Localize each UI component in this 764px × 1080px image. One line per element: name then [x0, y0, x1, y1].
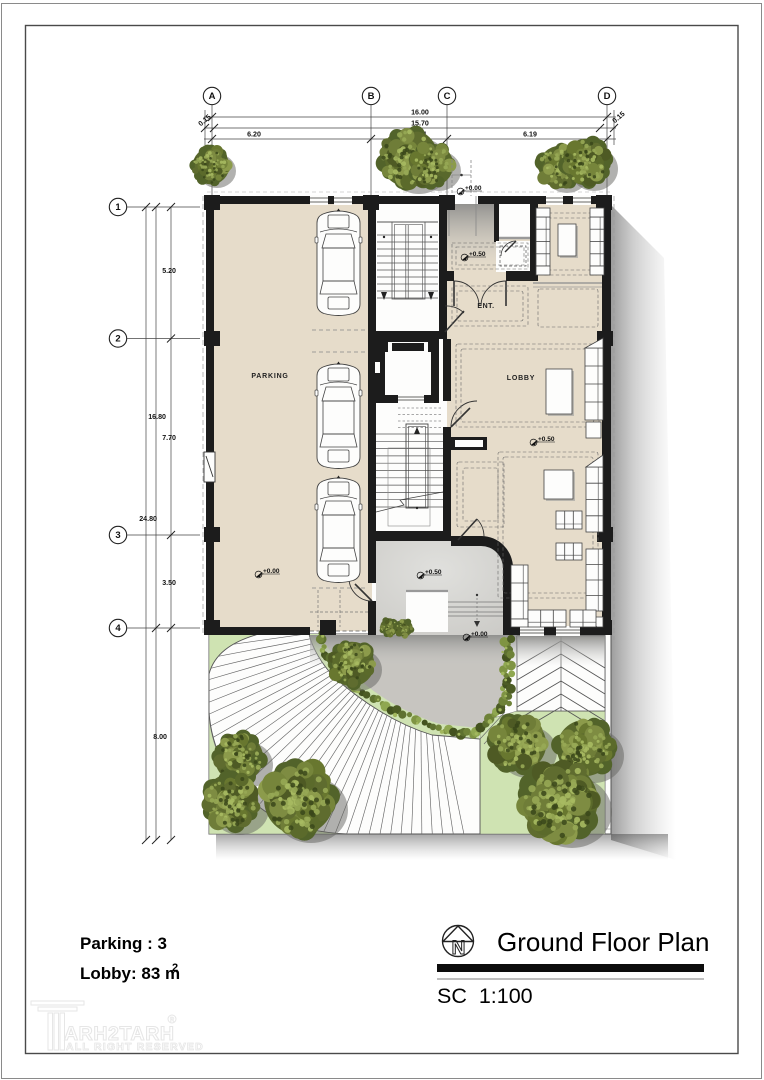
svg-text:Ground Floor Plan: Ground Floor Plan: [497, 927, 709, 957]
svg-text:R: R: [170, 1018, 175, 1024]
svg-text:8.00: 8.00: [153, 733, 167, 741]
svg-text:ENT.: ENT.: [477, 303, 494, 310]
svg-text:2: 2: [172, 962, 178, 974]
svg-text:D: D: [604, 91, 611, 102]
svg-text:A: A: [209, 91, 216, 102]
svg-text:6.19: 6.19: [523, 131, 537, 139]
svg-text:3: 3: [115, 530, 120, 541]
svg-text:N: N: [452, 938, 466, 959]
svg-text:SC 1:100: SC 1:100: [437, 984, 533, 1008]
svg-text:LOBBY: LOBBY: [507, 375, 536, 382]
svg-text:2: 2: [115, 334, 120, 345]
svg-text:5.20: 5.20: [162, 267, 176, 275]
svg-text:PARKING: PARKING: [251, 373, 288, 380]
svg-text:C: C: [444, 91, 451, 102]
svg-text:3.50: 3.50: [162, 579, 176, 587]
svg-text:16.00: 16.00: [411, 109, 429, 117]
svg-text:B: B: [368, 91, 375, 102]
svg-text:24.80: 24.80: [139, 515, 157, 523]
svg-text:Lobby: 83 m: Lobby: 83 m: [80, 964, 180, 983]
svg-text:ALL RIGHT RESERVED: ALL RIGHT RESERVED: [66, 1041, 204, 1053]
svg-text:6.20: 6.20: [247, 131, 261, 139]
svg-text:1: 1: [115, 202, 121, 213]
svg-text:4: 4: [115, 623, 121, 634]
svg-text:16.80: 16.80: [148, 413, 166, 421]
svg-text:7.70: 7.70: [162, 434, 176, 442]
svg-text:Parking : 3: Parking : 3: [80, 934, 167, 953]
